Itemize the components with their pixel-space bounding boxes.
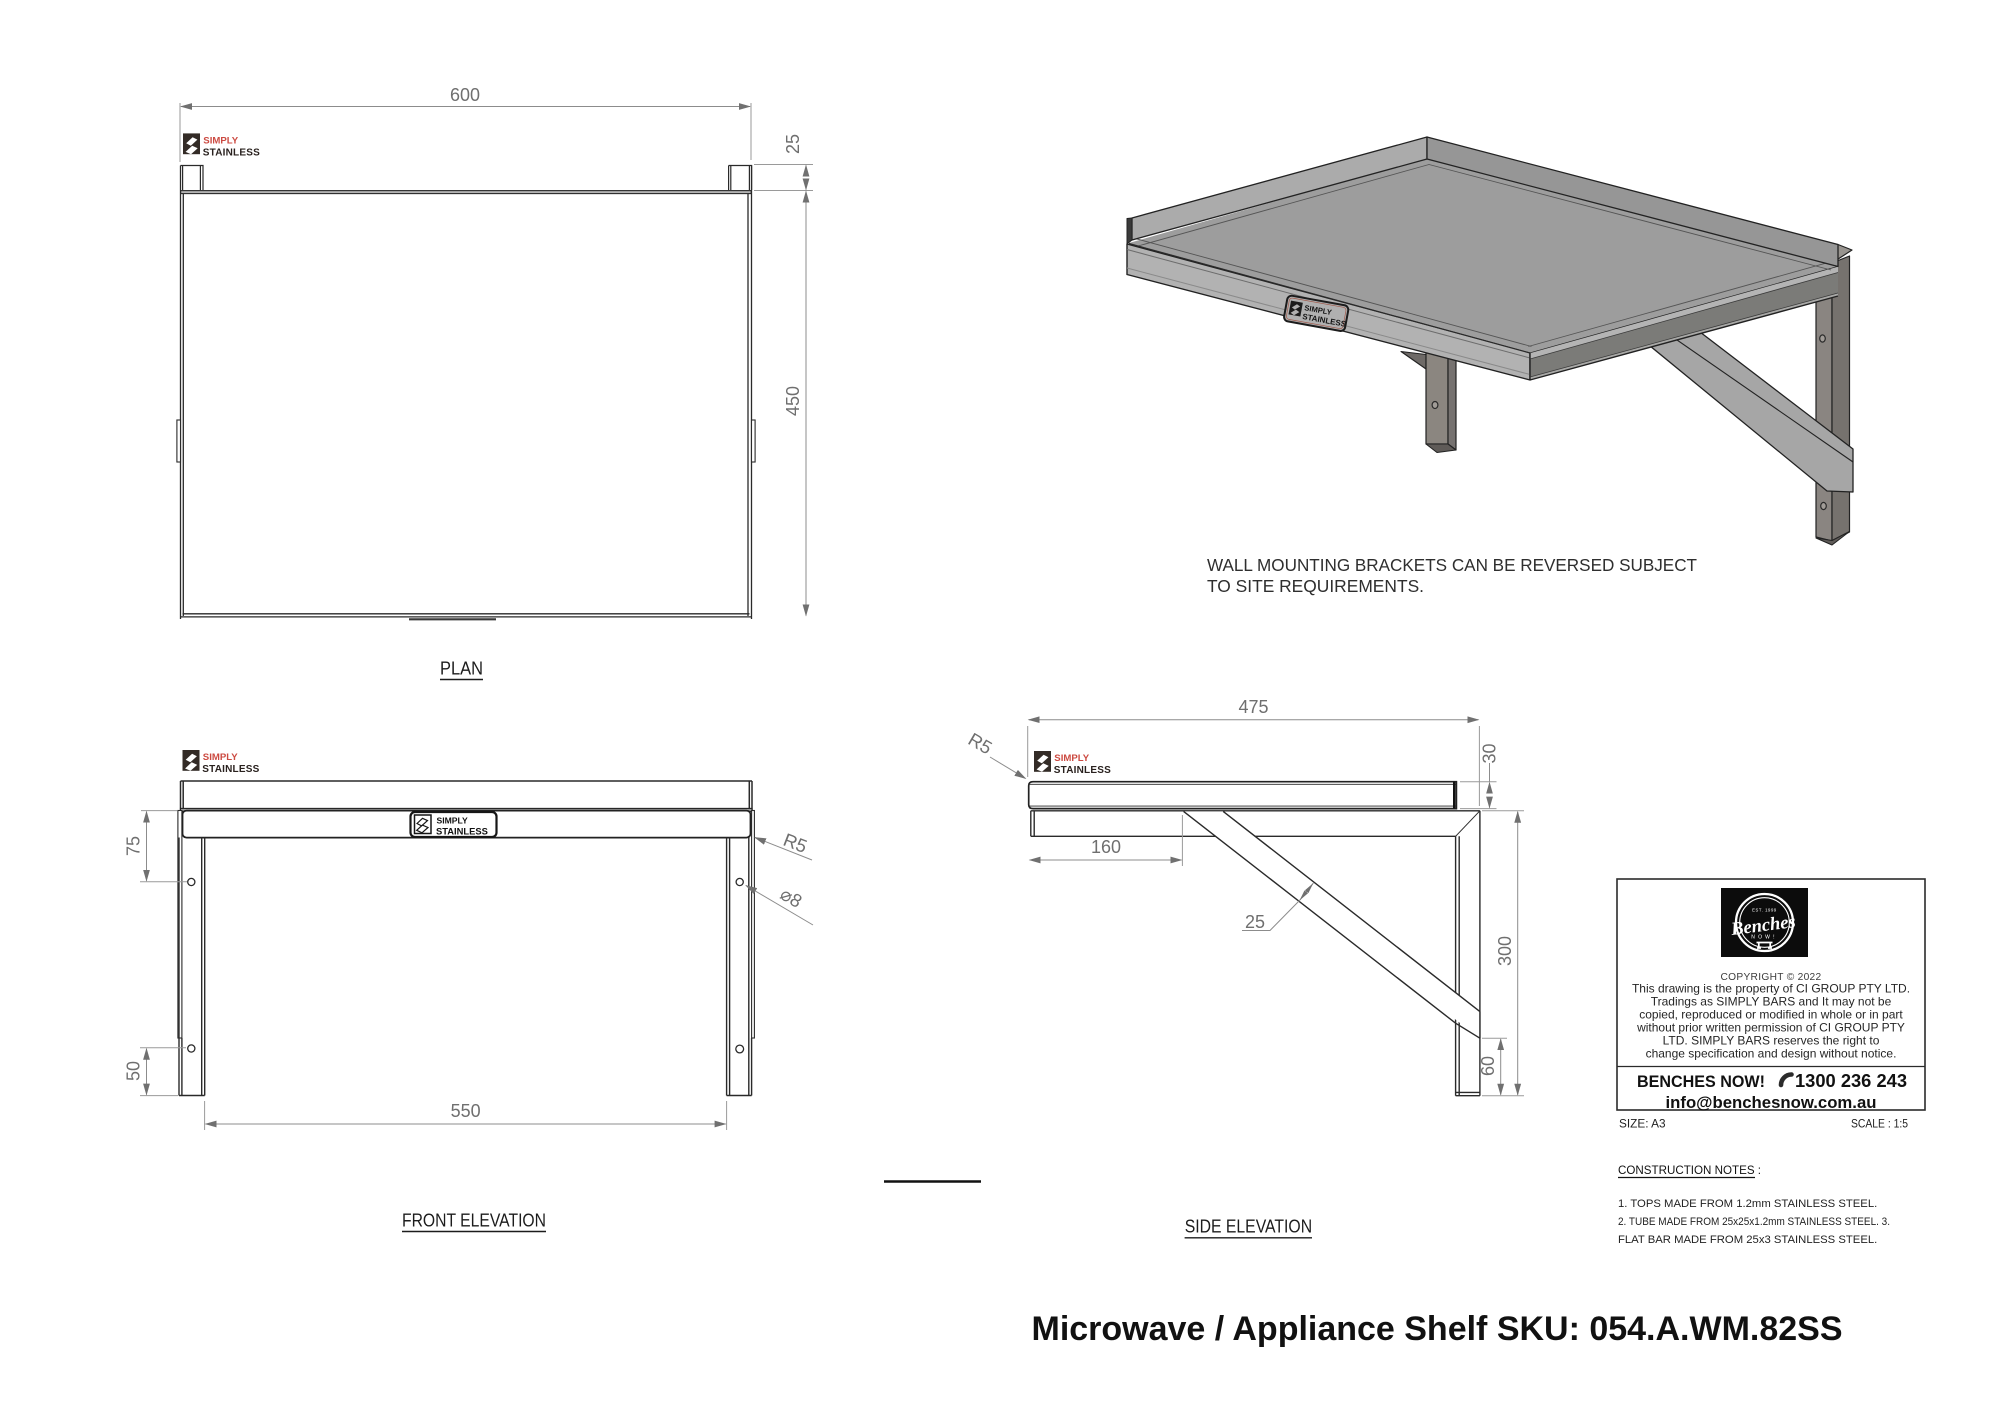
svg-text:600: 600: [450, 84, 480, 105]
svg-text:50: 50: [123, 1061, 144, 1081]
svg-text:Microwave / Appliance Shelf SK: Microwave / Appliance Shelf SKU: 054.A.W…: [1032, 1310, 1843, 1348]
svg-text:2. TUBE MADE FROM 25x25x1.2mm: 2. TUBE MADE FROM 25x25x1.2mm STAINLESS …: [1618, 1216, 1890, 1228]
svg-text:FRONT ELEVATION: FRONT ELEVATION: [402, 1211, 546, 1231]
svg-text:75: 75: [123, 836, 144, 856]
svg-text:SCALE : 1:5: SCALE : 1:5: [1851, 1117, 1908, 1131]
svg-text:SIMPLY: SIMPLY: [203, 135, 238, 146]
svg-text:STAINLESS: STAINLESS: [203, 147, 260, 158]
svg-text:⌀8: ⌀8: [777, 883, 806, 912]
svg-text:300: 300: [1494, 936, 1515, 966]
svg-text:550: 550: [451, 1100, 481, 1121]
svg-text:25: 25: [1245, 911, 1265, 932]
svg-text:SIMPLY: SIMPLY: [1054, 753, 1089, 764]
svg-text:SIZE: A3: SIZE: A3: [1619, 1117, 1666, 1131]
svg-text:1. TOPS MADE FROM 1.2mm STAINL: 1. TOPS MADE FROM 1.2mm STAINLESS STEEL.: [1618, 1198, 1877, 1210]
svg-text:change specification and desig: change specification and design without …: [1646, 1047, 1897, 1061]
svg-text:1300 236 243: 1300 236 243: [1795, 1071, 1907, 1091]
svg-text:copied, reproduced or modified: copied, reproduced or modified in whole …: [1639, 1008, 1903, 1022]
svg-text:R5: R5: [781, 829, 811, 857]
svg-text:This drawing is the property o: This drawing is the property of CI GROUP…: [1632, 982, 1910, 996]
svg-text:BENCHES NOW!: BENCHES NOW!: [1637, 1073, 1765, 1091]
svg-text:PLAN: PLAN: [440, 659, 483, 679]
svg-text:475: 475: [1239, 696, 1269, 717]
svg-text:CONSTRUCTION NOTES :: CONSTRUCTION NOTES :: [1618, 1164, 1761, 1177]
svg-text:R5: R5: [965, 728, 996, 758]
svg-text:450: 450: [782, 386, 803, 416]
svg-text:info@benchesnow.com.au: info@benchesnow.com.au: [1666, 1093, 1877, 1112]
svg-text:LTD. SIMPLY BARS reserves the: LTD. SIMPLY BARS reserves the right to: [1663, 1034, 1880, 1048]
svg-text:SIDE ELEVATION: SIDE ELEVATION: [1185, 1217, 1312, 1237]
svg-text:SIMPLY: SIMPLY: [203, 752, 238, 763]
svg-text:Tradings as SIMPLY BARS and It: Tradings as SIMPLY BARS and It may not b…: [1651, 995, 1892, 1009]
svg-text:SIMPLY: SIMPLY: [437, 816, 468, 826]
svg-text:TO SITE REQUIREMENTS.: TO SITE REQUIREMENTS.: [1207, 576, 1424, 596]
svg-text:25: 25: [782, 134, 803, 154]
svg-text:60: 60: [1477, 1056, 1498, 1076]
svg-text:without prior written permissi: without prior written permission of CI G…: [1636, 1021, 1905, 1035]
svg-text:EST. 1999: EST. 1999: [1752, 908, 1777, 913]
svg-text:30: 30: [1479, 744, 1500, 764]
svg-text:STAINLESS: STAINLESS: [202, 764, 259, 775]
svg-text:FLAT BAR MADE FROM 25x3 STAINL: FLAT BAR MADE FROM 25x3 STAINLESS STEEL.: [1618, 1234, 1877, 1246]
svg-text:STAINLESS: STAINLESS: [436, 825, 488, 836]
svg-text:STAINLESS: STAINLESS: [1054, 765, 1111, 776]
svg-text:WALL MOUNTING BRACKETS CAN BE: WALL MOUNTING BRACKETS CAN BE REVERSED S…: [1207, 555, 1697, 575]
svg-text:NOW!: NOW!: [1751, 935, 1777, 941]
svg-text:160: 160: [1091, 836, 1121, 857]
